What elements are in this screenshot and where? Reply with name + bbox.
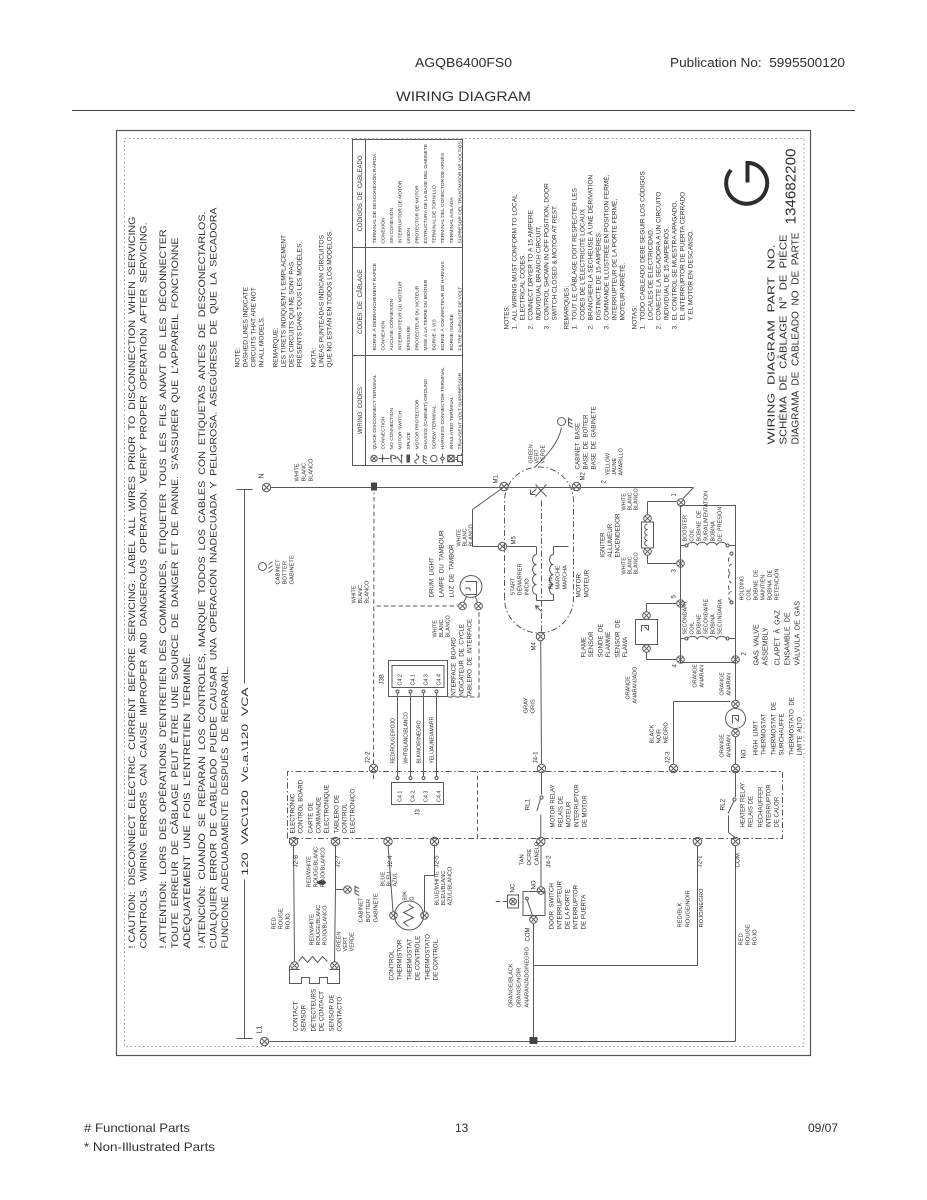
svg-text:RÉCHAUFFER: RÉCHAUFFER bbox=[758, 786, 765, 828]
svg-text:C4.1: C4.1 bbox=[398, 791, 404, 802]
svg-text:DIAGRAMA DE CABLEADO NO DE: DIAGRAMA DE CABLEADO NO DE PARTE bbox=[791, 232, 802, 444]
svg-text:LAMPE DU TAMBOUR: LAMPE DU TAMBOUR bbox=[439, 530, 446, 598]
svg-text:CÓDIGOS DE CABLEADO: CÓDIGOS DE CABLEADO bbox=[357, 155, 364, 231]
svg-text:MOTOR RELAY: MOTOR RELAY bbox=[551, 784, 557, 827]
svg-text:09/07: 09/07 bbox=[808, 1121, 838, 1135]
svg-text:ASSEMBLY: ASSEMBLY bbox=[761, 627, 770, 665]
svg-text:OCRE: OCRE bbox=[527, 849, 533, 866]
svg-text:DÉMARRER: DÉMARRER bbox=[517, 563, 524, 595]
svg-text:FLAMME: FLAMME bbox=[605, 632, 612, 658]
svg-text:MOTEUR ARRÊTÉ.: MOTEUR ARRÊTÉ. bbox=[618, 262, 627, 329]
svg-text:SENSOR: SENSOR bbox=[301, 1004, 308, 1031]
svg-text:DE PUERTA: DE PUERTA bbox=[581, 894, 588, 930]
svg-text:RED/WHITE: RED/WHITE bbox=[307, 856, 313, 888]
svg-text:RED: RED bbox=[739, 933, 745, 945]
svg-text:DE MOTOR: DE MOTOR bbox=[583, 795, 589, 828]
svg-text:! CAUTION: DISCONNECT ELECTR: ! CAUTION: DISCONNECT ELECTRIC CURRENT B… bbox=[126, 217, 137, 949]
svg-text:BORNE À VIS: BORNE À VIS bbox=[431, 319, 438, 351]
svg-text:13: 13 bbox=[455, 1121, 469, 1135]
svg-text:ENCENDEDOR: ENCENDEDOR bbox=[615, 513, 622, 558]
svg-text:L1: L1 bbox=[257, 1026, 264, 1034]
svg-text:J3: J3 bbox=[416, 809, 422, 816]
svg-text:NOIR: NOIR bbox=[657, 729, 663, 744]
svg-text:REMARQUE:: REMARQUE: bbox=[273, 327, 280, 367]
svg-text:VERT: VERT bbox=[343, 936, 349, 951]
svg-text:INTERRUPTOR DE MOTOR: INTERRUPTOR DE MOTOR bbox=[397, 180, 403, 243]
svg-text:INSULATED TERMINAL: INSULATED TERMINAL bbox=[449, 396, 455, 449]
svg-text:C4.1: C4.1 bbox=[411, 674, 417, 685]
svg-text:1. TODO CABLEADO DEBE SEGUIR: 1. TODO CABLEADO DEBE SEGUIR LOS CÓDIGOS bbox=[638, 171, 647, 330]
svg-text:WHITE: WHITE bbox=[352, 585, 358, 603]
svg-text:BASE DE GABINETE: BASE DE GABINETE bbox=[591, 406, 598, 469]
svg-text:J2-3: J2-3 bbox=[665, 751, 672, 764]
svg-text:CONNEXION: CONNEXION bbox=[380, 320, 386, 350]
svg-text:BOOSTER: BOOSTER bbox=[683, 515, 689, 541]
svg-text:INTERRUPTEUR: INTERRUPTEUR bbox=[557, 880, 564, 929]
svg-text:WIRING DIAGRAM: WIRING DIAGRAM bbox=[396, 89, 531, 104]
svg-text:CONTACT: CONTACT bbox=[293, 1001, 300, 1031]
svg-text:WIRING CODES: WIRING CODES bbox=[358, 387, 364, 434]
svg-text:CONNECTION: CONNECTION bbox=[380, 416, 386, 449]
svg-text:JAUNE: JAUNE bbox=[612, 457, 618, 475]
svg-text:DÉTECTEURS: DÉTECTEURS bbox=[309, 989, 318, 1032]
svg-text:DASHED LINES INDICATE: DASHED LINES INDICATE bbox=[243, 286, 250, 367]
svg-text:RED/BLK: RED/BLK bbox=[678, 903, 684, 928]
svg-text:TERMINAL DEL CONECTOR DE ARNÉS: TERMINAL DEL CONECTOR DE ARNÉS bbox=[439, 152, 446, 243]
svg-text:BLANCO: BLANCO bbox=[309, 458, 315, 482]
svg-text:MOTOR PROTECTOR: MOTOR PROTECTOR bbox=[415, 399, 421, 450]
svg-text:BOBINA: BOBINA bbox=[711, 521, 717, 542]
svg-text:THERMISTOR: THERMISTOR bbox=[397, 939, 404, 980]
svg-text:MOTOR: MOTOR bbox=[576, 573, 583, 597]
svg-text:GRIS: GRIS bbox=[531, 699, 537, 713]
svg-text:BLANC: BLANC bbox=[302, 463, 308, 482]
svg-text:BOBINE DE: BOBINE DE bbox=[754, 569, 760, 600]
svg-text:SWITCH CLOSED & MOTOR AT REST.: SWITCH CLOSED & MOTOR AT REST. bbox=[552, 205, 559, 330]
svg-text:COIL: COIL bbox=[690, 622, 696, 635]
svg-text:BLANCO: BLANCO bbox=[634, 488, 640, 510]
svg-text:GRAY: GRAY bbox=[524, 697, 530, 713]
svg-text:SENSOR DE: SENSOR DE bbox=[615, 619, 622, 657]
svg-text:ANARAN: ANARAN bbox=[700, 665, 706, 688]
svg-text:INTERRUPTEUR DU MOTEUR: INTERRUPTEUR DU MOTEUR bbox=[397, 281, 403, 351]
svg-text:SECONDARY: SECONDARY bbox=[683, 600, 689, 634]
svg-text:J2-7: J2-7 bbox=[335, 855, 342, 868]
svg-text:ROUGE: ROUGE bbox=[746, 924, 752, 945]
svg-text:NOTE:: NOTE: bbox=[235, 347, 242, 367]
svg-text:BLANCO: BLANCO bbox=[469, 524, 475, 546]
svg-text:2: 2 bbox=[602, 480, 608, 484]
svg-text:PROTECTOR DE MOTOR: PROTECTOR DE MOTOR bbox=[415, 185, 421, 244]
svg-text:COIL: COIL bbox=[690, 529, 696, 542]
svg-text:RETENCIÓN: RETENCIÓN bbox=[774, 569, 781, 601]
svg-text:THERMOSTAT: THERMOSTAT bbox=[761, 714, 768, 756]
svg-text:WHITE: WHITE bbox=[433, 620, 439, 638]
svg-text:TERMINAL AISLADA: TERMINAL AISLADA bbox=[449, 196, 455, 243]
svg-text:FUNCIONE ADECUADAMENTE DESPU: FUNCIONE ADECUADAMENTE DESPUÉS DE REPARA… bbox=[219, 667, 230, 949]
svg-text:ORANGE/NOIR: ORANGE/NOIR bbox=[517, 968, 523, 1008]
svg-text:3. COMMANDE ILLUSTRÉE EN POSI: 3. COMMANDE ILLUSTRÉE EN POSITION FERMÉ, bbox=[602, 174, 611, 329]
svg-text:SECUNDARIA: SECUNDARIA bbox=[718, 599, 724, 635]
svg-text:THERMOSTAT: THERMOSTAT bbox=[407, 939, 414, 981]
svg-text:AZUL/BLANCO: AZUL/BLANCO bbox=[448, 866, 454, 906]
svg-text:IGNITER: IGNITER bbox=[600, 532, 607, 558]
svg-text:BORNE ISOLÉE: BORNE ISOLÉE bbox=[448, 313, 455, 350]
svg-text:NC: NC bbox=[511, 883, 517, 892]
svg-text:ANARANJADO: ANARANJADO bbox=[633, 667, 639, 704]
svg-text:VERDE: VERDE bbox=[350, 932, 356, 952]
svg-text:INTERRUPTOR: INTERRUPTOR bbox=[575, 784, 581, 828]
svg-text:ORANGE: ORANGE bbox=[626, 676, 632, 700]
svg-text:COMMANDE: COMMANDE bbox=[316, 797, 323, 834]
svg-text:CUALQUIER ERROR DE CABLEADO: CUALQUIER ERROR DE CABLEADO PUEDE CAUSAR… bbox=[208, 207, 219, 949]
svg-text:NOTA:: NOTA: bbox=[311, 348, 318, 368]
svg-text:DISTINCTE DE 15 AMPÈRES.: DISTINCTE DE 15 AMPÈRES. bbox=[594, 231, 603, 329]
svg-text:5: 5 bbox=[672, 595, 678, 599]
svg-text:* Non-Illustrated Parts: * Non-Illustrated Parts bbox=[84, 1140, 215, 1154]
svg-text:CABINET: CABINET bbox=[359, 897, 365, 923]
svg-text:SENSOR: SENSOR bbox=[588, 631, 595, 658]
svg-text:GABINETE: GABINETE bbox=[374, 893, 380, 922]
svg-text:J4-1: J4-1 bbox=[533, 751, 540, 764]
svg-text:TABLERO DE INTERFACE: TABLERO DE INTERFACE bbox=[467, 619, 474, 698]
svg-text:M2: M2 bbox=[581, 472, 587, 481]
svg-text:ALLUMEUR: ALLUMEUR bbox=[607, 523, 614, 557]
svg-text:J4-2: J4-2 bbox=[546, 855, 553, 868]
svg-text:REMARQUES:: REMARQUES: bbox=[564, 286, 571, 330]
svg-text:SENSOR DE: SENSOR DE bbox=[329, 994, 336, 1031]
svg-text:ÉLECTRONIQUE: ÉLECTRONIQUE bbox=[324, 785, 331, 834]
svg-text:START: START bbox=[511, 577, 517, 595]
svg-text:120 VAC\120 Vc.a.\120 VCA: 120 VAC\120 Vc.a.\120 VCA bbox=[240, 687, 251, 876]
svg-text:GREEN: GREEN bbox=[337, 932, 343, 952]
svg-text:BLANCO: BLANCO bbox=[446, 615, 452, 637]
svg-text:BOTTER: BOTTER bbox=[366, 899, 372, 923]
svg-text:WHT\BLANC\BLANCO: WHT\BLANC\BLANCO bbox=[404, 712, 410, 764]
svg-text:DOOR SWITCH: DOOR SWITCH bbox=[549, 883, 556, 929]
svg-text:AUCUNE CONNEXION: AUCUNE CONNEXION bbox=[389, 298, 395, 350]
svg-text:J3B: J3B bbox=[380, 674, 386, 684]
svg-text:50K: 50K bbox=[403, 891, 409, 901]
svg-text:ROUGE: ROUGE bbox=[279, 908, 285, 929]
svg-text:M5: M5 bbox=[512, 536, 518, 545]
svg-text:Y EL MOTOR EN DESCANSO.: Y EL MOTOR EN DESCANSO. bbox=[688, 230, 695, 330]
svg-text:INDICATEUR DE CYCLE: INDICATEUR DE CYCLE bbox=[459, 624, 466, 697]
svg-text:3. CONTROL SHOWN IN OFF POSIT: 3. CONTROL SHOWN IN OFF POSITION, DOOR bbox=[544, 183, 551, 330]
svg-text:NEGRO: NEGRO bbox=[664, 722, 670, 744]
svg-text:THERMOSTATO: THERMOSTATO bbox=[425, 934, 432, 981]
svg-text:HARNESS CONNECTOR TERMINAL: HARNESS CONNECTOR TERMINAL bbox=[440, 367, 446, 450]
svg-text:INTERRUPTOR: INTERRUPTOR bbox=[767, 784, 773, 828]
svg-text:THERMOSTATO DE: THERMOSTATO DE bbox=[789, 697, 796, 755]
svg-text:INDIVIDUAL BRANCH CIRCUIT.: INDIVIDUAL BRANCH CIRCUIT. bbox=[536, 226, 543, 330]
svg-text:! ATTENTION: LORS DES OPÉRA: ! ATTENTION: LORS DES OPÉRATIONS D'ENTRE… bbox=[157, 229, 168, 948]
svg-text:HEATER RELAY: HEATER RELAY bbox=[741, 783, 747, 828]
svg-text:DE CONTACT: DE CONTACT bbox=[319, 991, 326, 1032]
svg-text:WIRING DIAGRAM PART NO.: WIRING DIAGRAM PART NO. bbox=[767, 245, 778, 445]
svg-text:BLEU/BLANC: BLEU/BLANC bbox=[441, 871, 447, 906]
svg-text:TRANSIENT VOLT SUPPRESSOR: TRANSIENT VOLT SUPPRESSOR bbox=[457, 372, 463, 449]
svg-text:CONTROLS. WIRING ERRORS CAN: CONTROLS. WIRING ERRORS CAN CAUSE IMPROP… bbox=[138, 222, 149, 948]
svg-text:C4.3: C4.3 bbox=[424, 791, 430, 802]
svg-text:LOCALES DE ELECTRICIDAD.: LOCALES DE ELECTRICIDAD. bbox=[648, 228, 655, 329]
svg-text:MISE À LA TERRE DU BOÎTIER: MISE À LA TERRE DU BOÎTIER bbox=[422, 279, 429, 350]
svg-text:INTERRUPTOR: INTERRUPTOR bbox=[573, 884, 580, 929]
svg-text:GABINETE: GABINETE bbox=[290, 555, 296, 584]
svg-text:ÉPISSURE: ÉPISSURE bbox=[405, 325, 412, 350]
svg-text:DES CIRCUITS QUI NE SONT PAS: DES CIRCUITS QUI NE SONT PAS bbox=[289, 261, 296, 367]
svg-text:TERMINAL DE TORNILLO: TERMINAL DE TORNILLO bbox=[432, 185, 438, 244]
svg-text:HIGH LIMIT: HIGH LIMIT bbox=[753, 721, 760, 756]
svg-text:MARCHA: MARCHA bbox=[563, 565, 569, 590]
svg-text:J2-2: J2-2 bbox=[365, 751, 372, 764]
svg-text:SCREW TERMINAL: SCREW TERMINAL bbox=[432, 405, 438, 449]
svg-text:BOBINA: BOBINA bbox=[711, 614, 717, 635]
svg-text:DE CALOR: DE CALOR bbox=[775, 796, 781, 827]
svg-text:TABLERO DE: TABLERO DE bbox=[334, 795, 341, 834]
svg-text:BLUE/WHITE: BLUE/WHITE bbox=[435, 871, 441, 905]
svg-text:ORANGE/BLACK: ORANGE/BLACK bbox=[509, 963, 515, 1007]
svg-text:TAN: TAN bbox=[520, 854, 526, 865]
svg-text:LES TIRETS INDIQUENT L'EMPLACE: LES TIRETS INDIQUENT L'EMPLACEMENT bbox=[281, 235, 288, 368]
svg-text:ROJO: ROJO bbox=[286, 913, 292, 930]
svg-text:INTERRUPTEUR DE LA PORTE FERMÉ: INTERRUPTEUR DE LA PORTE FERMÉ, bbox=[610, 199, 619, 330]
svg-text:AZUL: AZUL bbox=[393, 872, 399, 886]
svg-text:BORNE À DÉBRANCHEMENT RAPIDE: BORNE À DÉBRANCHEMENT RAPIDE bbox=[371, 262, 378, 350]
svg-text:! ATENCIÓN: CUANDO SE REPAR: ! ATENCIÓN: CUANDO SE REPARAN LOS CONTRO… bbox=[196, 212, 207, 949]
svg-text:1: 1 bbox=[672, 493, 678, 497]
svg-text:BLACK: BLACK bbox=[650, 724, 656, 743]
svg-text:COM: COM bbox=[735, 853, 742, 867]
svg-text:RED: RED bbox=[272, 917, 278, 929]
svg-text:BASE DE BOÎTER: BASE DE BOÎTER bbox=[583, 414, 590, 470]
svg-text:TOUTE ERREUR DE CÂBLAGE PE: TOUTE ERREUR DE CÂBLAGE PEUT ÊTRE UNE SO… bbox=[169, 238, 180, 949]
svg-text:ANARANJADO/NEGRO: ANARANJADO/NEGRO bbox=[525, 947, 531, 1008]
svg-text:J2-B: J2-B bbox=[293, 855, 300, 868]
svg-text:ANARAN: ANARAN bbox=[727, 673, 733, 696]
svg-text:LIMITE ALTO: LIMITE ALTO bbox=[797, 717, 804, 756]
svg-text:RED/WHITE: RED/WHITE bbox=[310, 914, 316, 946]
svg-text:1. ALL WIRING MUST CONFORM TO: 1. ALL WIRING MUST CONFORM TO LOCAL bbox=[512, 194, 519, 330]
svg-text:CANELO: CANELO bbox=[535, 841, 541, 865]
svg-text:N: N bbox=[259, 473, 266, 478]
svg-text:RL1: RL1 bbox=[525, 798, 532, 810]
svg-text:DE CONTRÔLE: DE CONTRÔLE bbox=[415, 936, 422, 981]
svg-text:ADÉQUATEMENT UNE FOIS L'ENT: ADÉQUATEMENT UNE FOIS L'ENTRETIEN TERMIN… bbox=[181, 654, 192, 949]
svg-text:VERDE: VERDE bbox=[541, 445, 547, 464]
svg-text:ORANGE: ORANGE bbox=[720, 734, 726, 758]
svg-text:CARTE DE: CARTE DE bbox=[308, 802, 315, 833]
svg-text:LUZ DE TAMBOR: LUZ DE TAMBOR bbox=[449, 544, 456, 598]
svg-text:2. BRANCHER LA SÉCHEUSE À UNE: 2. BRANCHER LA SÉCHEUSE À UNE DÉRIVATION bbox=[586, 174, 595, 329]
svg-text:C4.4: C4.4 bbox=[437, 674, 443, 685]
svg-text:3: 3 bbox=[672, 569, 678, 573]
svg-text:SONDE DE: SONDE DE bbox=[598, 623, 605, 657]
svg-text:THERMOSTAT DE: THERMOSTAT DE bbox=[771, 702, 778, 756]
svg-text:134682200: 134682200 bbox=[784, 149, 800, 225]
svg-text:CLAPET À GAZ: CLAPET À GAZ bbox=[773, 610, 782, 666]
svg-text:SCHÉMA DE CÂBLAGE N° DE P: SCHÉMA DE CÂBLAGE N° DE PIÈCE bbox=[779, 234, 790, 445]
svg-text:LINEAS PUNTEADAS INDICAN CIRCU: LINEAS PUNTEADAS INDICAN CIRCUITOS bbox=[319, 234, 326, 367]
svg-text:CHASSIS (CABINET) GROUND: CHASSIS (CABINET) GROUND bbox=[423, 379, 429, 450]
svg-text:INDIVIDUAL DE 15 AMPERIOS.: INDIVIDUAL DE 15 AMPERIOS. bbox=[664, 227, 671, 330]
svg-text:BORNE À CONNECTEUR DE HARNAIS: BORNE À CONNECTEUR DE HARNAIS bbox=[439, 261, 446, 351]
svg-text:RED\ROUGE\ROJO: RED\ROUGE\ROJO bbox=[391, 718, 397, 764]
svg-text:NO: NO bbox=[532, 880, 538, 889]
svg-text:BOBINE DE: BOBINE DE bbox=[697, 510, 703, 541]
svg-text:SUPRESOR DEL TRANSMISOR DE VOL: SUPRESOR DEL TRANSMISOR DE VOLTIOS bbox=[457, 140, 463, 243]
svg-text:Ω: Ω bbox=[410, 897, 416, 901]
svg-text:2. CONECTE LA SECADORA A UN C: 2. CONECTE LA SECADORA A UN CIRCUITO bbox=[656, 192, 663, 330]
svg-text:YELLOW: YELLOW bbox=[606, 452, 612, 475]
svg-text:CONTROL BOARD: CONTROL BOARD bbox=[298, 779, 305, 833]
svg-text:FLAME: FLAME bbox=[581, 637, 588, 658]
svg-text:# Functional Parts: # Functional Parts bbox=[84, 1121, 190, 1135]
svg-text:SECONDAIRE: SECONDAIRE bbox=[704, 598, 710, 634]
svg-text:NO CONNECTION: NO CONNECTION bbox=[389, 407, 395, 449]
svg-text:ANARAN: ANARAN bbox=[727, 735, 733, 758]
svg-text:M1: M1 bbox=[494, 475, 500, 484]
svg-text:AMARILLO: AMARILLO bbox=[619, 448, 625, 475]
svg-text:NOTAS:: NOTAS: bbox=[632, 306, 639, 330]
svg-text:MAINTIEN: MAINTIEN bbox=[761, 575, 767, 601]
svg-text:Publication No: 5995500120: Publication No: 5995500120 bbox=[670, 56, 845, 70]
svg-text:ELECTRICAL CODES.: ELECTRICAL CODES. bbox=[520, 254, 527, 330]
svg-text:BLANC: BLANC bbox=[358, 585, 364, 604]
svg-text:WHITE: WHITE bbox=[295, 463, 301, 481]
svg-text:ROUGE/NOIR: ROUGE/NOIR bbox=[686, 890, 692, 927]
svg-text:SIN CONEXIÓN: SIN CONEXIÓN bbox=[388, 207, 395, 243]
svg-text:CABINET: CABINET bbox=[276, 559, 282, 585]
svg-text:NO: NO bbox=[742, 749, 748, 758]
svg-text:COM: COM bbox=[526, 928, 532, 942]
svg-text:2: 2 bbox=[742, 652, 748, 656]
svg-text:NOTES:: NOTES: bbox=[504, 305, 511, 329]
svg-text:EL INTERRUPTOR DE PUERTA CERRA: EL INTERRUPTOR DE PUERTA CERRADO bbox=[680, 192, 687, 330]
svg-text:ELECTRONIC: ELECTRONIC bbox=[290, 793, 297, 833]
svg-text:SPLICE: SPLICE bbox=[406, 431, 412, 449]
svg-text:IN ALL MODELS.: IN ALL MODELS. bbox=[259, 316, 266, 367]
svg-text:DRUM LIGHT: DRUM LIGHT bbox=[429, 557, 436, 597]
svg-text:BLANC: BLANC bbox=[439, 619, 445, 637]
svg-text:CABINET BASE: CABINET BASE bbox=[575, 423, 582, 470]
svg-text:2. CONNECT DRYER TO A 15 AMPE: 2. CONNECT DRYER TO A 15 AMPERE bbox=[528, 209, 535, 329]
svg-text:RUN: RUN bbox=[549, 577, 555, 589]
svg-text:RELAIS DE: RELAIS DE bbox=[749, 796, 755, 827]
svg-text:3. EL CONTROL SE MUESTRA APAG: 3. EL CONTROL SE MUESTRA APAGADO, bbox=[672, 201, 679, 330]
svg-text:TERMINAL DE DESCONEXIÓN RÁPIDA: TERMINAL DE DESCONEXIÓN RÁPIDA bbox=[371, 153, 378, 244]
svg-text:BLANCO: BLANCO bbox=[634, 552, 640, 574]
svg-text:PROTECTEUR DU MOTEUR: PROTECTEUR DU MOTEUR bbox=[415, 285, 421, 350]
svg-text:CODES DE CÂBLAGE: CODES DE CÂBLAGE bbox=[357, 269, 364, 334]
svg-text:DE PRESIÓN: DE PRESIÓN bbox=[717, 507, 724, 542]
svg-text:FILTRE PARASITE DE VOLT: FILTRE PARASITE DE VOLT bbox=[457, 287, 463, 351]
svg-text:UNIÓN: UNIÓN bbox=[405, 227, 412, 243]
svg-text:ENSAMBLE DE: ENSAMBLE DE bbox=[783, 612, 792, 665]
svg-text:RELAIS DE: RELAIS DE bbox=[559, 796, 565, 827]
svg-text:MOTEUR: MOTEUR bbox=[567, 801, 573, 828]
svg-text:VÁLVULA DE GAS: VÁLVULA DE GAS bbox=[793, 601, 802, 666]
svg-text:ROJO/NEGRO: ROJO/NEGRO bbox=[699, 888, 705, 927]
svg-text:CONEXIÓN: CONEXIÓN bbox=[379, 217, 386, 244]
svg-text:C4.2: C4.2 bbox=[398, 674, 404, 685]
svg-text:1. TOUT LE CÂBLAGE DOIT RESPE: 1. TOUT LE CÂBLAGE DOIT RESPECTER LES bbox=[570, 187, 579, 329]
svg-text:QUICK DISCONNECT TERMINAL: QUICK DISCONNECT TERMINAL bbox=[372, 374, 378, 449]
svg-text:BOBINA DE: BOBINA DE bbox=[768, 570, 774, 601]
svg-text:BLANCO: BLANCO bbox=[365, 580, 371, 604]
svg-text:CONTACTO: CONTACTO bbox=[337, 997, 344, 1032]
svg-text:CIRCUITS THAT ARE NOT: CIRCUITS THAT ARE NOT bbox=[251, 287, 258, 367]
svg-text:CONTROL: CONTROL bbox=[342, 803, 349, 834]
svg-text:QUE NO ESTÁN EN TODOS LOS MODE: QUE NO ESTÁN EN TODOS LOS MODELOS. bbox=[325, 230, 334, 368]
svg-text:INTERFACE BOARD: INTERFACE BOARD bbox=[451, 637, 458, 698]
svg-text:RL2: RL2 bbox=[720, 798, 727, 810]
svg-text:FLAMA: FLAMA bbox=[622, 636, 629, 658]
svg-text:INICIO: INICIO bbox=[525, 578, 531, 596]
svg-text:C4.4: C4.4 bbox=[437, 791, 443, 802]
svg-text:BOBINE: BOBINE bbox=[697, 614, 703, 635]
svg-text:4: 4 bbox=[673, 664, 679, 668]
svg-text:M4: M4 bbox=[532, 642, 538, 651]
svg-text:ROJO/BLANCO: ROJO/BLANCO bbox=[323, 905, 329, 946]
svg-text:BOTTER: BOTTER bbox=[283, 561, 289, 585]
svg-text:MARCHE: MARCHE bbox=[556, 565, 562, 590]
svg-text:AGQB6400FS0: AGQB6400FS0 bbox=[415, 56, 512, 70]
svg-text:GAS VALVE: GAS VALVE bbox=[752, 624, 761, 665]
svg-text:MOTOR SWITCH: MOTOR SWITCH bbox=[397, 410, 403, 449]
svg-text:ORANGE: ORANGE bbox=[693, 664, 699, 688]
svg-text:HOLDING: HOLDING bbox=[740, 576, 746, 601]
svg-text:YEL\JAUNE\AMARR: YEL\JAUNE\AMARR bbox=[430, 716, 436, 763]
svg-text:ELECTRÓNICO: ELECTRÓNICO bbox=[350, 789, 357, 834]
svg-text:C4.2: C4.2 bbox=[411, 791, 417, 802]
svg-text:PRÉSENTS DANS TOUS LES MODÈLES: PRÉSENTS DANS TOUS LES MODÈLES. bbox=[295, 242, 304, 368]
svg-text:J2-4: J2-4 bbox=[387, 855, 394, 868]
svg-text:SURCHAUFFE: SURCHAUFFE bbox=[779, 713, 786, 755]
svg-text:SURALIMENTATION: SURALIMENTATION bbox=[704, 491, 710, 542]
svg-text:ROJO: ROJO bbox=[753, 929, 759, 946]
svg-text:CODES DE L'ÉLECTRICITÉ LOCAUX: CODES DE L'ÉLECTRICITÉ LOCAUX bbox=[578, 208, 587, 329]
svg-text:ESTRUCTURA DE LA BASE DEL GABI: ESTRUCTURA DE LA BASE DEL GABINETE bbox=[423, 143, 429, 243]
svg-text:DE CONTROL.: DE CONTROL. bbox=[433, 938, 440, 981]
svg-text:J2-5: J2-5 bbox=[434, 855, 441, 868]
svg-text:ROUGE/BLANC: ROUGE/BLANC bbox=[316, 905, 322, 946]
svg-text:CONTROL: CONTROL bbox=[389, 950, 396, 981]
svg-text:DE LA PORTE: DE LA PORTE bbox=[565, 889, 572, 929]
svg-text:C4.3: C4.3 bbox=[424, 674, 430, 685]
svg-text:COIL: COIL bbox=[747, 588, 753, 601]
svg-text:MOTEUR: MOTEUR bbox=[584, 569, 591, 597]
svg-text:BLK\NOIR\NEGRO: BLK\NOIR\NEGRO bbox=[417, 720, 423, 763]
svg-text:ORANGE: ORANGE bbox=[720, 672, 726, 696]
